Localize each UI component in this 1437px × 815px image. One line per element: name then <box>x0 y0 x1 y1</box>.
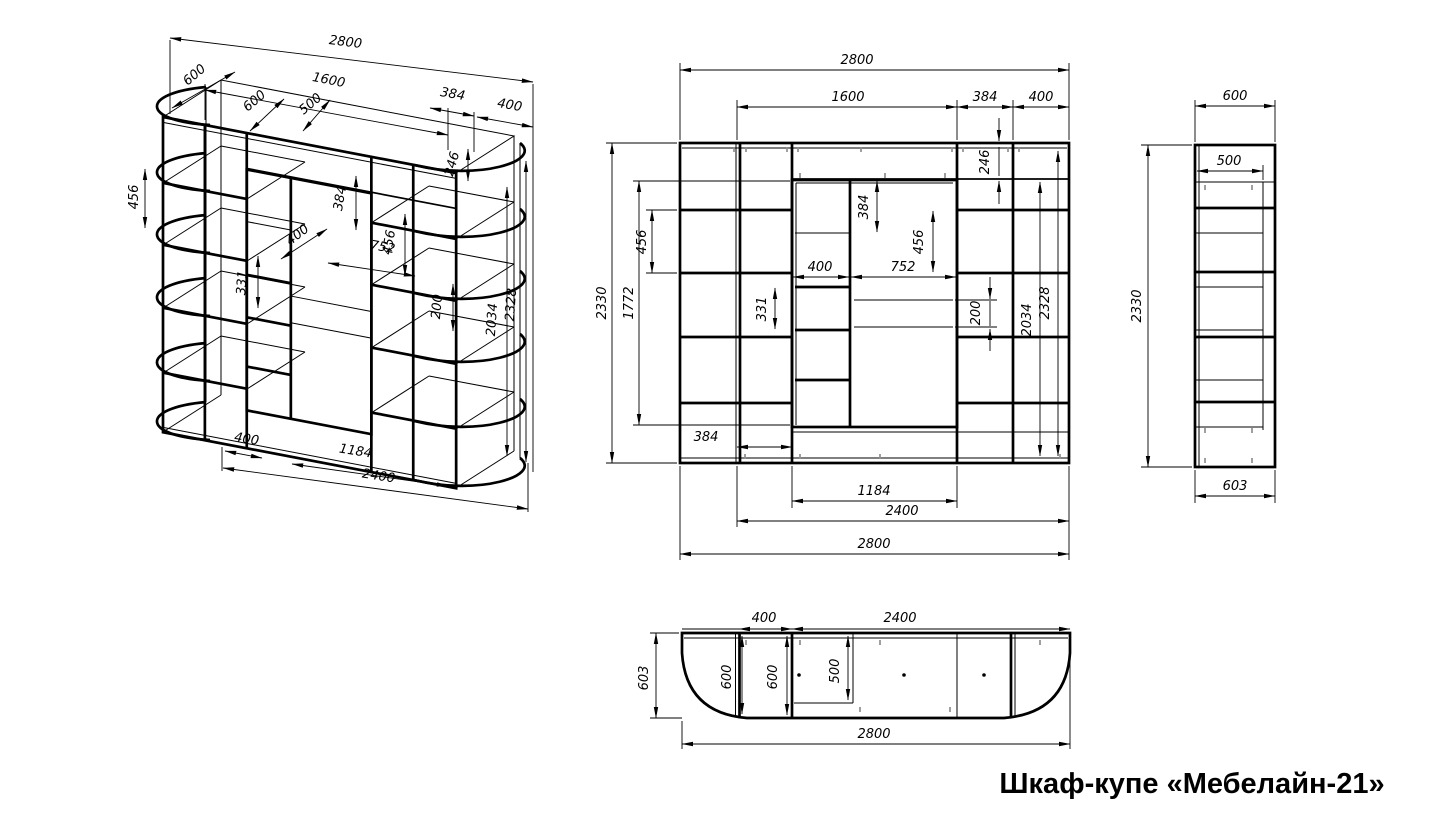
iso-dim-2328: 2328 <box>503 288 520 322</box>
iso-dim-depth-500: 500 <box>296 91 325 118</box>
front-dim-400-top: 400 <box>1029 90 1054 105</box>
iso-dim-246: 246 <box>442 150 463 178</box>
isometric-view: 2800 600 1600 600 500 384 400 456 384 45… <box>127 33 533 512</box>
iso-dim-2400: 2400 <box>361 467 396 487</box>
front-dim-246: 246 <box>978 150 993 175</box>
side-dim-600: 600 <box>1223 89 1248 104</box>
front-dim-384-bottom: 384 <box>694 430 719 445</box>
iso-dim-1184: 1184 <box>338 442 373 462</box>
cad-drawing: 2800 600 1600 600 500 384 400 456 384 45… <box>0 0 1437 815</box>
front-dim-2800-top: 2800 <box>840 53 873 68</box>
iso-dim-depth-mid: 600 <box>240 88 269 115</box>
iso-dim-752: 752 <box>369 238 396 257</box>
iso-dim-200: 200 <box>429 294 446 320</box>
side-dim-603: 603 <box>1223 479 1248 494</box>
iso-dim-400-oblique: 400 <box>283 222 312 249</box>
iso-dim-331: 331 <box>234 270 251 296</box>
iso-dim-400-top: 400 <box>496 96 523 115</box>
front-dim-2800-bottom: 2800 <box>857 537 890 552</box>
iso-dim-384-top: 384 <box>439 85 466 104</box>
plan-dim-600-b: 600 <box>766 665 781 690</box>
side-view: 600 500 2330 603 <box>1130 89 1275 503</box>
iso-dim-1600: 1600 <box>311 70 346 91</box>
front-dim-1184: 1184 <box>857 484 890 499</box>
front-dim-384-top: 384 <box>973 90 998 105</box>
front-dim-200: 200 <box>969 301 984 326</box>
front-dim-752: 752 <box>891 260 916 275</box>
drawing-sheet: 2800 600 1600 600 500 384 400 456 384 45… <box>0 0 1437 815</box>
iso-dim-384-inner: 384 <box>331 185 350 212</box>
front-dim-2328: 2328 <box>1038 286 1053 319</box>
plan-dim-603: 603 <box>637 666 652 691</box>
plan-dim-500: 500 <box>828 659 843 684</box>
front-dim-456-left: 456 <box>635 230 650 255</box>
front-dim-456-inner: 456 <box>912 230 927 255</box>
front-dim-1772: 1772 <box>622 286 637 319</box>
front-dim-2330: 2330 <box>595 286 610 319</box>
side-dim-2330: 2330 <box>1130 289 1145 322</box>
front-dim-400-inner: 400 <box>808 260 833 275</box>
plan-dim-2400: 2400 <box>883 611 916 626</box>
front-dim-1600: 1600 <box>831 90 864 105</box>
iso-dim-2034: 2034 <box>484 303 501 337</box>
iso-front-grid <box>163 117 456 488</box>
front-dim-2400: 2400 <box>885 504 918 519</box>
front-dim-2034: 2034 <box>1020 303 1035 336</box>
side-dim-500: 500 <box>1217 154 1242 169</box>
plan-dim-2800: 2800 <box>857 727 890 742</box>
iso-dim-456-left: 456 <box>127 185 142 210</box>
plan-dim-400: 400 <box>752 611 777 626</box>
front-dim-384-inner: 384 <box>857 195 872 220</box>
iso-dim-width-total: 2800 <box>328 33 363 52</box>
plan-dim-600-a: 600 <box>720 665 735 690</box>
plan-view: 400 2400 603 600 600 500 2800 <box>637 611 1070 749</box>
drawing-title: Шкаф-купе «Мебелайн-21» <box>999 768 1384 800</box>
front-view: 2800 1600 384 400 2330 1772 456 246 384 … <box>595 53 1069 560</box>
front-dim-331: 331 <box>755 297 770 322</box>
